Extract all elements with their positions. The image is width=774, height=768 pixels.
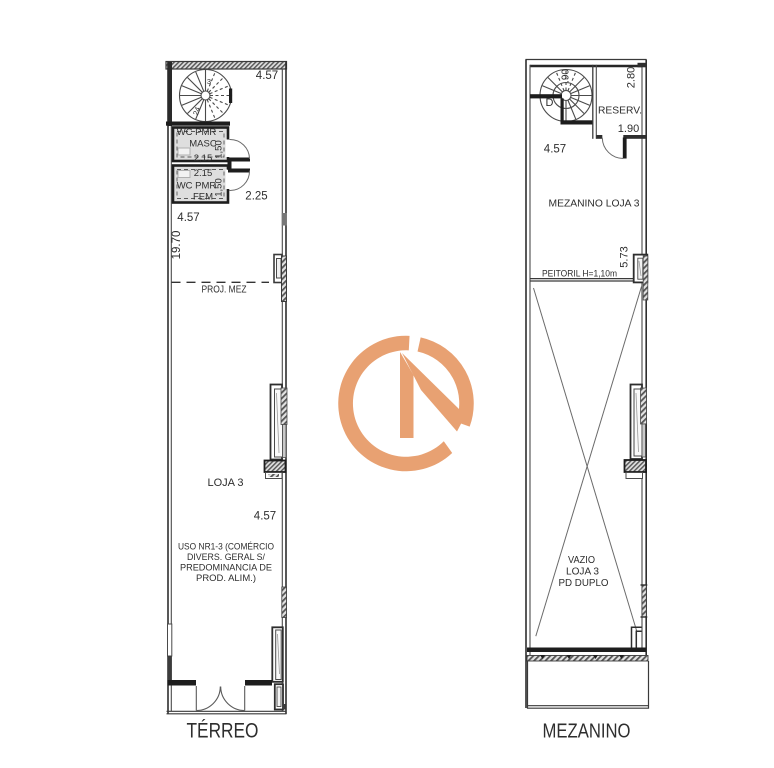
- svg-text:PROD. ALIM.): PROD. ALIM.): [196, 573, 256, 584]
- svg-text:2.25: 2.25: [245, 191, 267, 203]
- svg-text:WC PMR: WC PMR: [177, 181, 217, 192]
- svg-text:PROJ. MEZ: PROJ. MEZ: [202, 285, 247, 296]
- svg-text:LOJA 3: LOJA 3: [207, 477, 243, 489]
- svg-text:19.70: 19.70: [171, 231, 183, 260]
- svg-text:5.73: 5.73: [619, 246, 631, 267]
- svg-text:2,15: 2,15: [194, 153, 213, 164]
- svg-text:D: D: [546, 97, 554, 109]
- svg-text:1,50: 1,50: [214, 178, 225, 197]
- svg-text:PREDOMINANCIA DE: PREDOMINANCIA DE: [180, 563, 272, 574]
- svg-text:VAZIO: VAZIO: [568, 554, 595, 566]
- svg-text:RESERV.: RESERV.: [598, 105, 642, 117]
- svg-text:WC PMR: WC PMR: [177, 127, 217, 138]
- svg-text:MEZANINO LOJA 3: MEZANINO LOJA 3: [549, 198, 640, 210]
- svg-text:DIVERS. GERAL S/: DIVERS. GERAL S/: [187, 552, 265, 563]
- svg-text:4.57: 4.57: [544, 144, 566, 156]
- svg-text:.90: .90: [561, 69, 572, 83]
- svg-text:3: 3: [207, 77, 211, 86]
- svg-text:PEITORIL H=1,10m: PEITORIL H=1,10m: [542, 269, 617, 279]
- svg-text:USO NR1-3 (COMÉRCIO: USO NR1-3 (COMÉRCIO: [178, 542, 274, 553]
- svg-text:4.57: 4.57: [256, 70, 278, 82]
- svg-text:2.15: 2.15: [194, 168, 213, 179]
- svg-text:2.80: 2.80: [626, 67, 638, 88]
- svg-text:FEM: FEM: [193, 192, 213, 203]
- svg-text:MEZANINO: MEZANINO: [543, 721, 631, 743]
- svg-text:4.57: 4.57: [254, 511, 276, 523]
- svg-text:1,50: 1,50: [214, 140, 225, 159]
- svg-text:TÉRREO: TÉRREO: [187, 720, 259, 743]
- svg-text:1.90: 1.90: [618, 123, 639, 135]
- svg-text:PD DUPLO: PD DUPLO: [559, 577, 609, 589]
- svg-text:LOJA 3: LOJA 3: [566, 566, 599, 578]
- svg-text:4.57: 4.57: [177, 212, 199, 224]
